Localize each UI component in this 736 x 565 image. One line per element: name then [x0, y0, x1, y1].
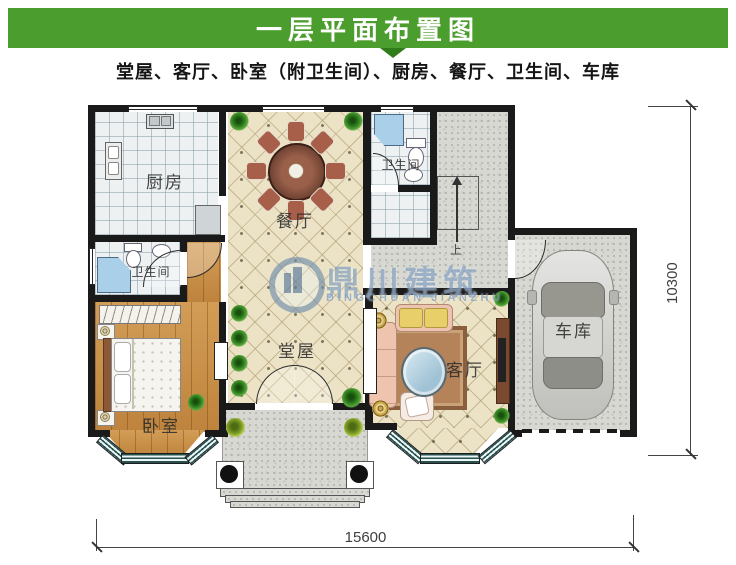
chair [287, 121, 305, 142]
wall-bedroom-bottom [88, 430, 110, 437]
wall-spine [219, 105, 226, 196]
garage-door-dashed [522, 429, 620, 433]
sofa-cushion [424, 308, 448, 328]
watermark-en: DINGCHUAN JIANZHU [326, 292, 503, 304]
label-dining: 餐厅 [260, 207, 330, 232]
room-list-subtitle: 堂屋、客厅、卧室（附卫生间）、厨房、餐厅、卫生间、车库 [0, 58, 736, 84]
plant-icon [231, 355, 248, 372]
wall-spine [219, 302, 226, 342]
dim-line-bottom [97, 547, 634, 548]
bedroom-bay-window [121, 453, 189, 464]
laundry-nook-floor [371, 192, 430, 238]
wall-garage-bottom [620, 430, 637, 437]
stove-burner-icon [108, 146, 119, 159]
floor-plan-page: 一层平面布置图 堂屋、客厅、卧室（附卫生间）、厨房、餐厅、卫生间、车库 [0, 0, 736, 565]
dim-bottom-value: 15600 [97, 529, 634, 546]
wardrobe [99, 305, 181, 324]
plant-icon [230, 112, 249, 131]
hall-living-door-panel [363, 308, 377, 394]
kitchen-sink-bowl [161, 116, 171, 126]
ensuite-window [89, 248, 95, 285]
stove-burner-icon [108, 162, 119, 175]
car-mirror [527, 290, 537, 305]
kitchen-window [128, 106, 198, 112]
pillow [114, 342, 131, 372]
wall-garage-top [508, 228, 637, 235]
lamp-icon [100, 326, 110, 336]
label-bath-top: 卫生间 [374, 156, 428, 173]
dining-window [262, 106, 325, 112]
dim-line-right [690, 106, 691, 456]
car-mirror [609, 290, 619, 305]
chair [246, 162, 267, 180]
wall-stairhall-right [508, 105, 515, 235]
dim-tick [685, 448, 696, 459]
decor-medallion [372, 400, 389, 417]
page-title: 一层平面布置图 [256, 10, 480, 47]
label-bath-ensuite: 卫生间 [124, 263, 178, 280]
wall-bedroom-top [88, 295, 187, 302]
watermark-building-icon [293, 267, 302, 293]
plant-icon [231, 305, 248, 322]
plant-icon [231, 330, 248, 347]
wall-garage-right [630, 228, 637, 437]
porch-column-icon [220, 465, 238, 483]
kitchen-sink-bowl [149, 116, 160, 126]
stairs-arrowhead-icon [452, 176, 462, 185]
watermark-building-icon [284, 273, 291, 293]
bed-fold-line [132, 339, 134, 409]
wall-bath-corridor [180, 285, 187, 302]
label-bedroom: 卧室 [126, 412, 196, 437]
living-bay-window [420, 453, 480, 464]
plant-icon [342, 388, 362, 408]
porch-column-icon [350, 465, 368, 483]
sofa-cushion [399, 308, 423, 328]
car-rear-window [543, 357, 603, 389]
wall-dining-right [363, 112, 371, 238]
porch-step [230, 501, 360, 508]
bedroom-door-panel [214, 342, 228, 380]
plant-icon [231, 380, 248, 397]
label-living: 客厅 [430, 356, 500, 381]
label-garage: 车库 [539, 317, 609, 342]
title-bar-notch-icon [380, 48, 406, 58]
lamp-icon [100, 412, 110, 422]
dim-tick [685, 99, 696, 110]
wall-bath-stair [430, 112, 437, 238]
wall-nook-bottom [363, 238, 437, 245]
stairs-arrow [456, 182, 458, 242]
dim-right-value: 10300 [664, 248, 682, 318]
bath-window [380, 106, 414, 112]
plant-icon [188, 394, 205, 411]
label-hall: 堂屋 [262, 337, 332, 362]
wall-bath-corridor [180, 242, 187, 252]
car-windshield [541, 282, 605, 318]
wall-hall-front [221, 403, 255, 410]
plant-icon [344, 112, 363, 131]
pillow [114, 374, 131, 404]
wall-kitchen-bottom [88, 235, 225, 242]
title-bar: 一层平面布置图 [8, 8, 728, 48]
bush-icon [344, 418, 363, 437]
wall-garage-left [508, 235, 515, 240]
kitchen-counter [195, 205, 221, 235]
bush-icon [226, 418, 245, 437]
chair [325, 162, 346, 180]
plant-icon [494, 408, 510, 424]
label-kitchen: 厨房 [130, 168, 200, 193]
dining-table-plate [288, 163, 304, 179]
